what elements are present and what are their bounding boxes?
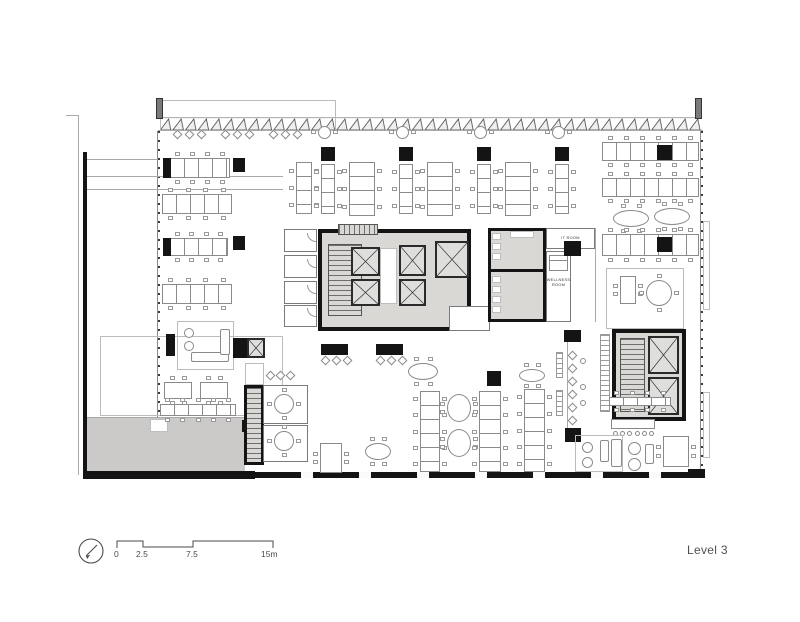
floor-plan-sheet: IT ROOM WELLNESS ROOM Level 3 0 2.5 7.5 … (0, 0, 800, 622)
it-room-label: IT ROOM (546, 235, 595, 240)
wellness-room-label: WELLNESS ROOM (543, 277, 574, 287)
wellness-room-label-line2: ROOM (543, 282, 574, 287)
scale-label-7-5: 7.5 (186, 549, 198, 559)
north-arrow-icon (76, 536, 106, 566)
scale-label-0: 0 (114, 549, 119, 559)
scale-label-15m: 15m (261, 549, 278, 559)
scale-label-2-5: 2.5 (136, 549, 148, 559)
annotation-layer: IT ROOM WELLNESS ROOM Level 3 0 2.5 7.5 … (0, 0, 800, 622)
level-label: Level 3 (687, 543, 728, 557)
